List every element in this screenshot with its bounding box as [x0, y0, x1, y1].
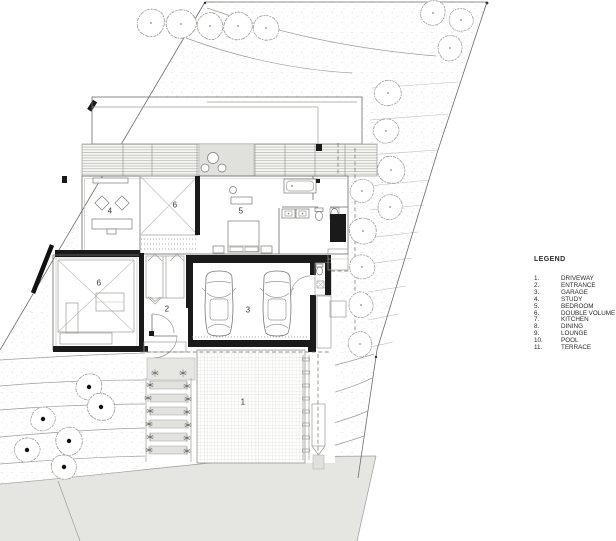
toilet	[316, 212, 323, 221]
dresser	[231, 197, 252, 204]
deck-table	[208, 153, 219, 164]
legend-item: 11.TERRACE	[534, 345, 616, 352]
room-label-double-volume-lower: 6	[97, 279, 102, 288]
room-label-double-volume-upper: 6	[173, 201, 178, 210]
deck-chair	[201, 164, 209, 172]
study-desk	[92, 219, 132, 229]
toilet	[317, 267, 323, 275]
room-label-study: 4	[108, 207, 113, 216]
room-label-driveway: 1	[241, 398, 246, 407]
legend-title: LEGEND	[534, 256, 616, 263]
floor-plan-page: 4 6 5 6 2 3 1 LEGEND 1.DRIVEWAY 2.ENTRAN…	[0, 0, 616, 541]
deck-chair	[218, 164, 226, 172]
room-label-bedroom: 5	[239, 207, 244, 216]
room-label-garage: 3	[246, 306, 251, 315]
car	[260, 271, 294, 336]
bed	[228, 221, 259, 252]
room-label-entrance: 2	[165, 305, 170, 314]
entry-porch	[147, 358, 195, 380]
site-plan-drawing	[0, 0, 616, 541]
nightstand	[213, 246, 224, 253]
nightstand	[261, 246, 272, 253]
car	[202, 271, 236, 336]
legend: LEGEND 1.DRIVEWAY 2.ENTRANCE 3.GARAGE 4.…	[534, 256, 616, 352]
